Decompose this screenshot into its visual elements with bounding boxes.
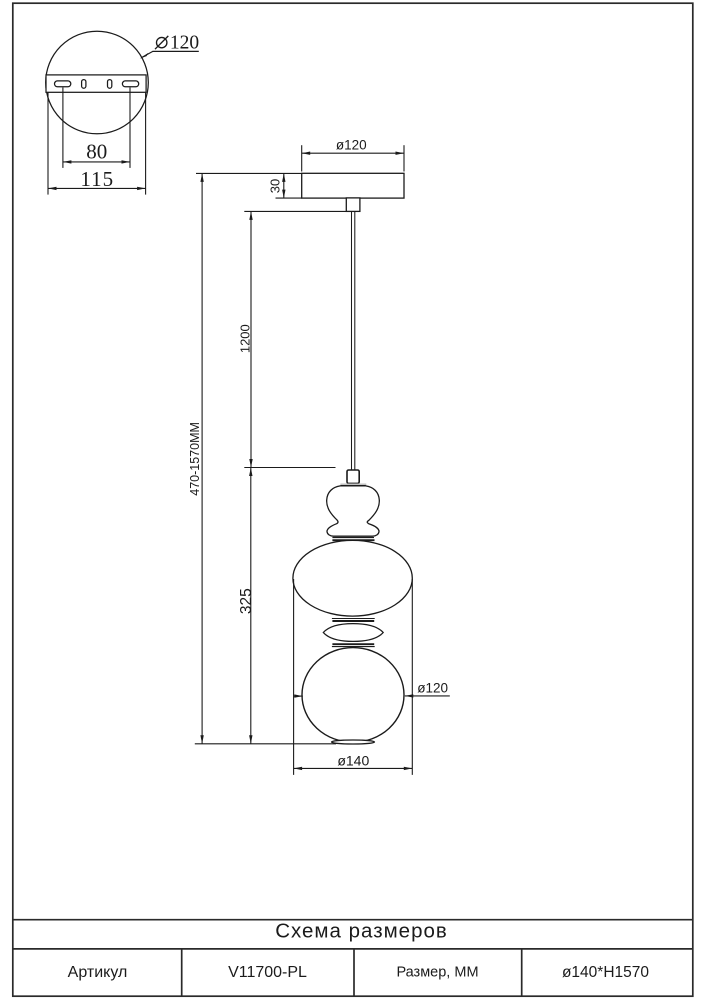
svg-text:120: 120 (170, 33, 199, 54)
svg-text:30: 30 (267, 179, 282, 193)
svg-text:Схема размеров: Схема размеров (275, 920, 448, 943)
svg-text:Артикул: Артикул (68, 964, 128, 981)
svg-text:ø140: ø140 (337, 752, 369, 768)
svg-text:325: 325 (238, 588, 255, 614)
svg-text:Размер, ММ: Размер, ММ (396, 965, 478, 981)
svg-text:80: 80 (86, 139, 107, 163)
svg-text:ø120: ø120 (336, 138, 367, 153)
svg-text:V11700-PL: V11700-PL (228, 964, 307, 981)
svg-text:1200: 1200 (237, 324, 252, 353)
svg-text:115: 115 (80, 167, 114, 191)
svg-text:ø140*H1570: ø140*H1570 (562, 964, 649, 981)
svg-text:ø120: ø120 (417, 681, 448, 696)
svg-text:470-1570MM: 470-1570MM (188, 422, 202, 496)
